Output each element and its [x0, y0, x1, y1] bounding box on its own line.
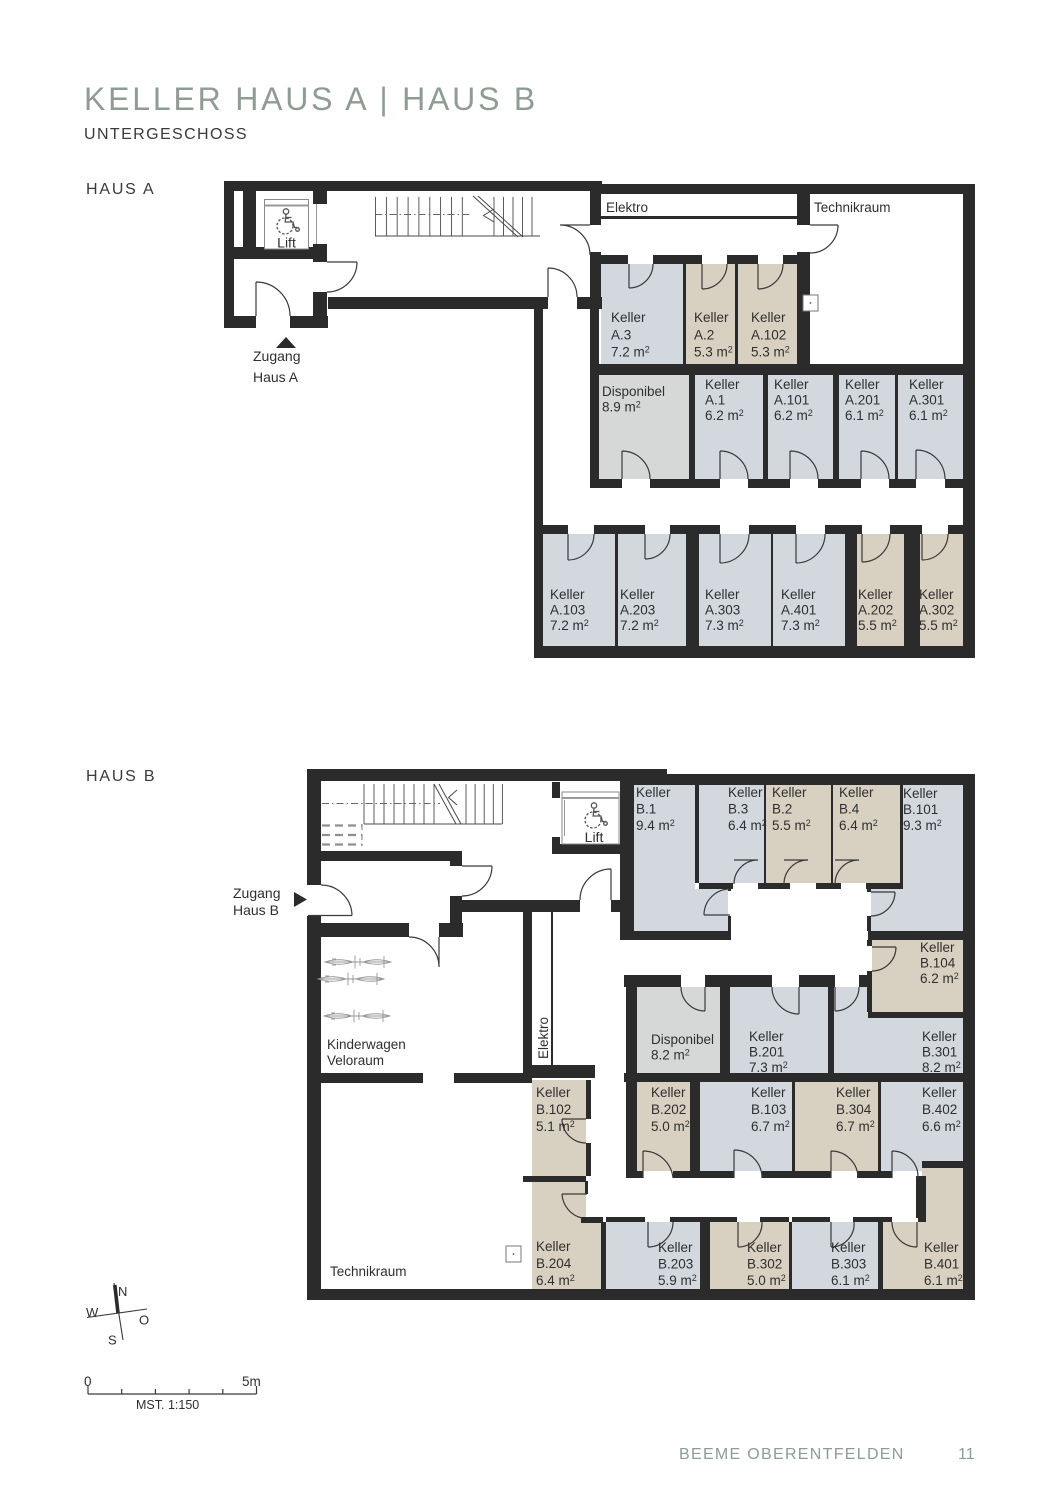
svg-text:Keller: Keller [536, 1239, 571, 1254]
svg-text:Keller: Keller [922, 1085, 957, 1100]
svg-text:BEEME OBERENTFELDEN: BEEME OBERENTFELDEN [679, 1446, 905, 1463]
svg-text:9.3 m2: 9.3 m2 [903, 818, 942, 833]
svg-text:Keller: Keller [909, 377, 944, 392]
svg-text:A.301: A.301 [909, 393, 944, 408]
svg-text:Keller: Keller [919, 587, 954, 602]
svg-text:A.202: A.202 [858, 603, 893, 618]
svg-text:B.301: B.301 [922, 1045, 957, 1060]
svg-text:A.303: A.303 [705, 603, 740, 618]
svg-text:A.203: A.203 [620, 603, 655, 618]
svg-text:Keller: Keller [550, 587, 585, 602]
svg-text:7.2 m2: 7.2 m2 [550, 618, 589, 633]
svg-text:5.3 m2: 5.3 m2 [751, 345, 790, 360]
svg-text:6.4 m2: 6.4 m2 [728, 818, 767, 833]
svg-text:HAUS A: HAUS A [86, 181, 156, 198]
svg-text:Keller: Keller [694, 310, 729, 325]
svg-text:Keller: Keller [536, 1085, 571, 1100]
svg-text:11: 11 [958, 1446, 975, 1463]
svg-text:B.102: B.102 [536, 1102, 571, 1117]
svg-text:6.4 m2: 6.4 m2 [536, 1273, 575, 1288]
svg-text:Technikraum: Technikraum [814, 200, 891, 215]
svg-text:Keller: Keller [836, 1085, 871, 1100]
svg-text:Kinderwagen: Kinderwagen [327, 1037, 406, 1052]
svg-text:O: O [139, 1313, 149, 1328]
svg-text:MST. 1:150: MST. 1:150 [136, 1398, 199, 1412]
svg-text:Keller: Keller [636, 785, 671, 800]
svg-text:9.4 m2: 9.4 m2 [636, 818, 675, 833]
svg-text:A.2: A.2 [694, 327, 714, 342]
svg-text:Elektro: Elektro [536, 1017, 551, 1059]
svg-text:5.3 m2: 5.3 m2 [694, 345, 733, 360]
svg-text:Lift: Lift [585, 829, 604, 845]
svg-text:Keller: Keller [858, 587, 893, 602]
svg-text:Technikraum: Technikraum [330, 1264, 407, 1279]
svg-text:B.101: B.101 [903, 802, 938, 817]
svg-text:5.1 m2: 5.1 m2 [536, 1119, 575, 1134]
svg-text:B.1: B.1 [636, 802, 656, 817]
svg-text:7.2 m2: 7.2 m2 [611, 345, 650, 360]
svg-text:7.3 m2: 7.3 m2 [749, 1060, 788, 1075]
svg-text:Keller: Keller [903, 786, 938, 801]
svg-text:Haus B: Haus B [233, 902, 279, 918]
svg-text:Keller: Keller [728, 785, 763, 800]
svg-text:A.1: A.1 [705, 393, 725, 408]
svg-text:W: W [86, 1305, 99, 1320]
svg-text:Zugang: Zugang [253, 348, 300, 364]
svg-text:Elektro: Elektro [606, 200, 648, 215]
svg-text:Keller: Keller [920, 940, 955, 955]
svg-text:Keller: Keller [658, 1240, 693, 1255]
svg-text:5m: 5m [242, 1374, 261, 1389]
svg-text:A.103: A.103 [550, 603, 585, 618]
svg-text:B.2: B.2 [772, 802, 792, 817]
svg-text:A.201: A.201 [845, 393, 880, 408]
svg-text:5.5 m2: 5.5 m2 [919, 618, 958, 633]
svg-text:Disponibel: Disponibel [651, 1032, 714, 1047]
svg-text:B.203: B.203 [658, 1257, 693, 1272]
svg-text:Keller: Keller [620, 587, 655, 602]
svg-text:8.2 m2: 8.2 m2 [922, 1060, 961, 1075]
svg-text:Keller: Keller [774, 377, 809, 392]
svg-text:Keller: Keller [751, 1085, 786, 1100]
svg-text:Keller: Keller [749, 1029, 784, 1044]
svg-text:Veloraum: Veloraum [327, 1053, 384, 1068]
svg-text:Keller: Keller [924, 1240, 959, 1255]
svg-text:6.7 m2: 6.7 m2 [836, 1119, 875, 1134]
svg-text:Keller: Keller [772, 785, 807, 800]
svg-text:6.1 m2: 6.1 m2 [845, 408, 884, 423]
svg-text:6.2 m2: 6.2 m2 [774, 408, 813, 423]
svg-text:Keller: Keller [747, 1240, 782, 1255]
svg-text:Keller: Keller [705, 587, 740, 602]
svg-text:8.2 m2: 8.2 m2 [651, 1048, 690, 1063]
svg-text:B.202: B.202 [651, 1102, 686, 1117]
svg-text:Keller: Keller [651, 1085, 686, 1100]
svg-text:B.304: B.304 [836, 1102, 872, 1117]
svg-text:8.9 m2: 8.9 m2 [602, 400, 641, 415]
svg-text:UNTERGESCHOSS: UNTERGESCHOSS [84, 126, 248, 143]
svg-text:B.303: B.303 [831, 1257, 866, 1272]
svg-text:B.201: B.201 [749, 1045, 784, 1060]
svg-text:Keller: Keller [751, 310, 786, 325]
svg-text:6.2 m2: 6.2 m2 [705, 408, 744, 423]
svg-text:Keller: Keller [705, 377, 740, 392]
svg-text:B.104: B.104 [920, 956, 956, 971]
svg-text:B.204: B.204 [536, 1256, 572, 1271]
svg-text:A.3: A.3 [611, 327, 631, 342]
svg-text:B.103: B.103 [751, 1102, 786, 1117]
svg-text:A.102: A.102 [751, 327, 786, 342]
svg-text:5.9 m2: 5.9 m2 [658, 1273, 697, 1288]
svg-text:Lift: Lift [277, 235, 296, 251]
svg-text:S: S [108, 1333, 117, 1348]
svg-text:B.4: B.4 [839, 802, 860, 817]
svg-text:Keller: Keller [922, 1029, 957, 1044]
svg-text:7.2 m2: 7.2 m2 [620, 618, 659, 633]
svg-text:N: N [118, 1284, 127, 1299]
svg-text:7.3 m2: 7.3 m2 [781, 618, 820, 633]
svg-text:Keller: Keller [845, 377, 880, 392]
svg-text:6.1 m2: 6.1 m2 [924, 1273, 963, 1288]
svg-text:HAUS B: HAUS B [86, 768, 156, 785]
svg-text:5.5 m2: 5.5 m2 [858, 618, 897, 633]
svg-text:5.0 m2: 5.0 m2 [747, 1273, 786, 1288]
svg-text:5.0 m2: 5.0 m2 [651, 1119, 690, 1134]
svg-text:0: 0 [84, 1374, 92, 1389]
svg-text:Keller: Keller [781, 587, 816, 602]
svg-text:Zugang: Zugang [233, 885, 280, 901]
svg-text:6.2 m2: 6.2 m2 [920, 971, 959, 986]
svg-text:Haus A: Haus A [253, 369, 299, 385]
svg-text:B.401: B.401 [924, 1257, 959, 1272]
svg-text:B.402: B.402 [922, 1102, 957, 1117]
svg-text:Keller: Keller [839, 785, 874, 800]
svg-text:A.401: A.401 [781, 603, 816, 618]
svg-text:6.1 m2: 6.1 m2 [909, 408, 948, 423]
svg-text:6.4 m2: 6.4 m2 [839, 818, 878, 833]
svg-text:Disponibel: Disponibel [602, 384, 665, 399]
svg-text:6.6 m2: 6.6 m2 [922, 1119, 961, 1134]
svg-text:A.101: A.101 [774, 393, 809, 408]
svg-text:5.5 m2: 5.5 m2 [772, 818, 811, 833]
svg-text:Keller: Keller [831, 1240, 866, 1255]
svg-text:7.3 m2: 7.3 m2 [705, 618, 744, 633]
svg-text:KELLER HAUS A | HAUS B: KELLER HAUS A | HAUS B [84, 81, 538, 117]
svg-text:Keller: Keller [611, 310, 646, 325]
svg-text:A.302: A.302 [919, 603, 954, 618]
svg-text:6.1 m2: 6.1 m2 [831, 1273, 870, 1288]
svg-text:B.3: B.3 [728, 802, 748, 817]
svg-text:B.302: B.302 [747, 1257, 782, 1272]
svg-text:6.7 m2: 6.7 m2 [751, 1119, 790, 1134]
